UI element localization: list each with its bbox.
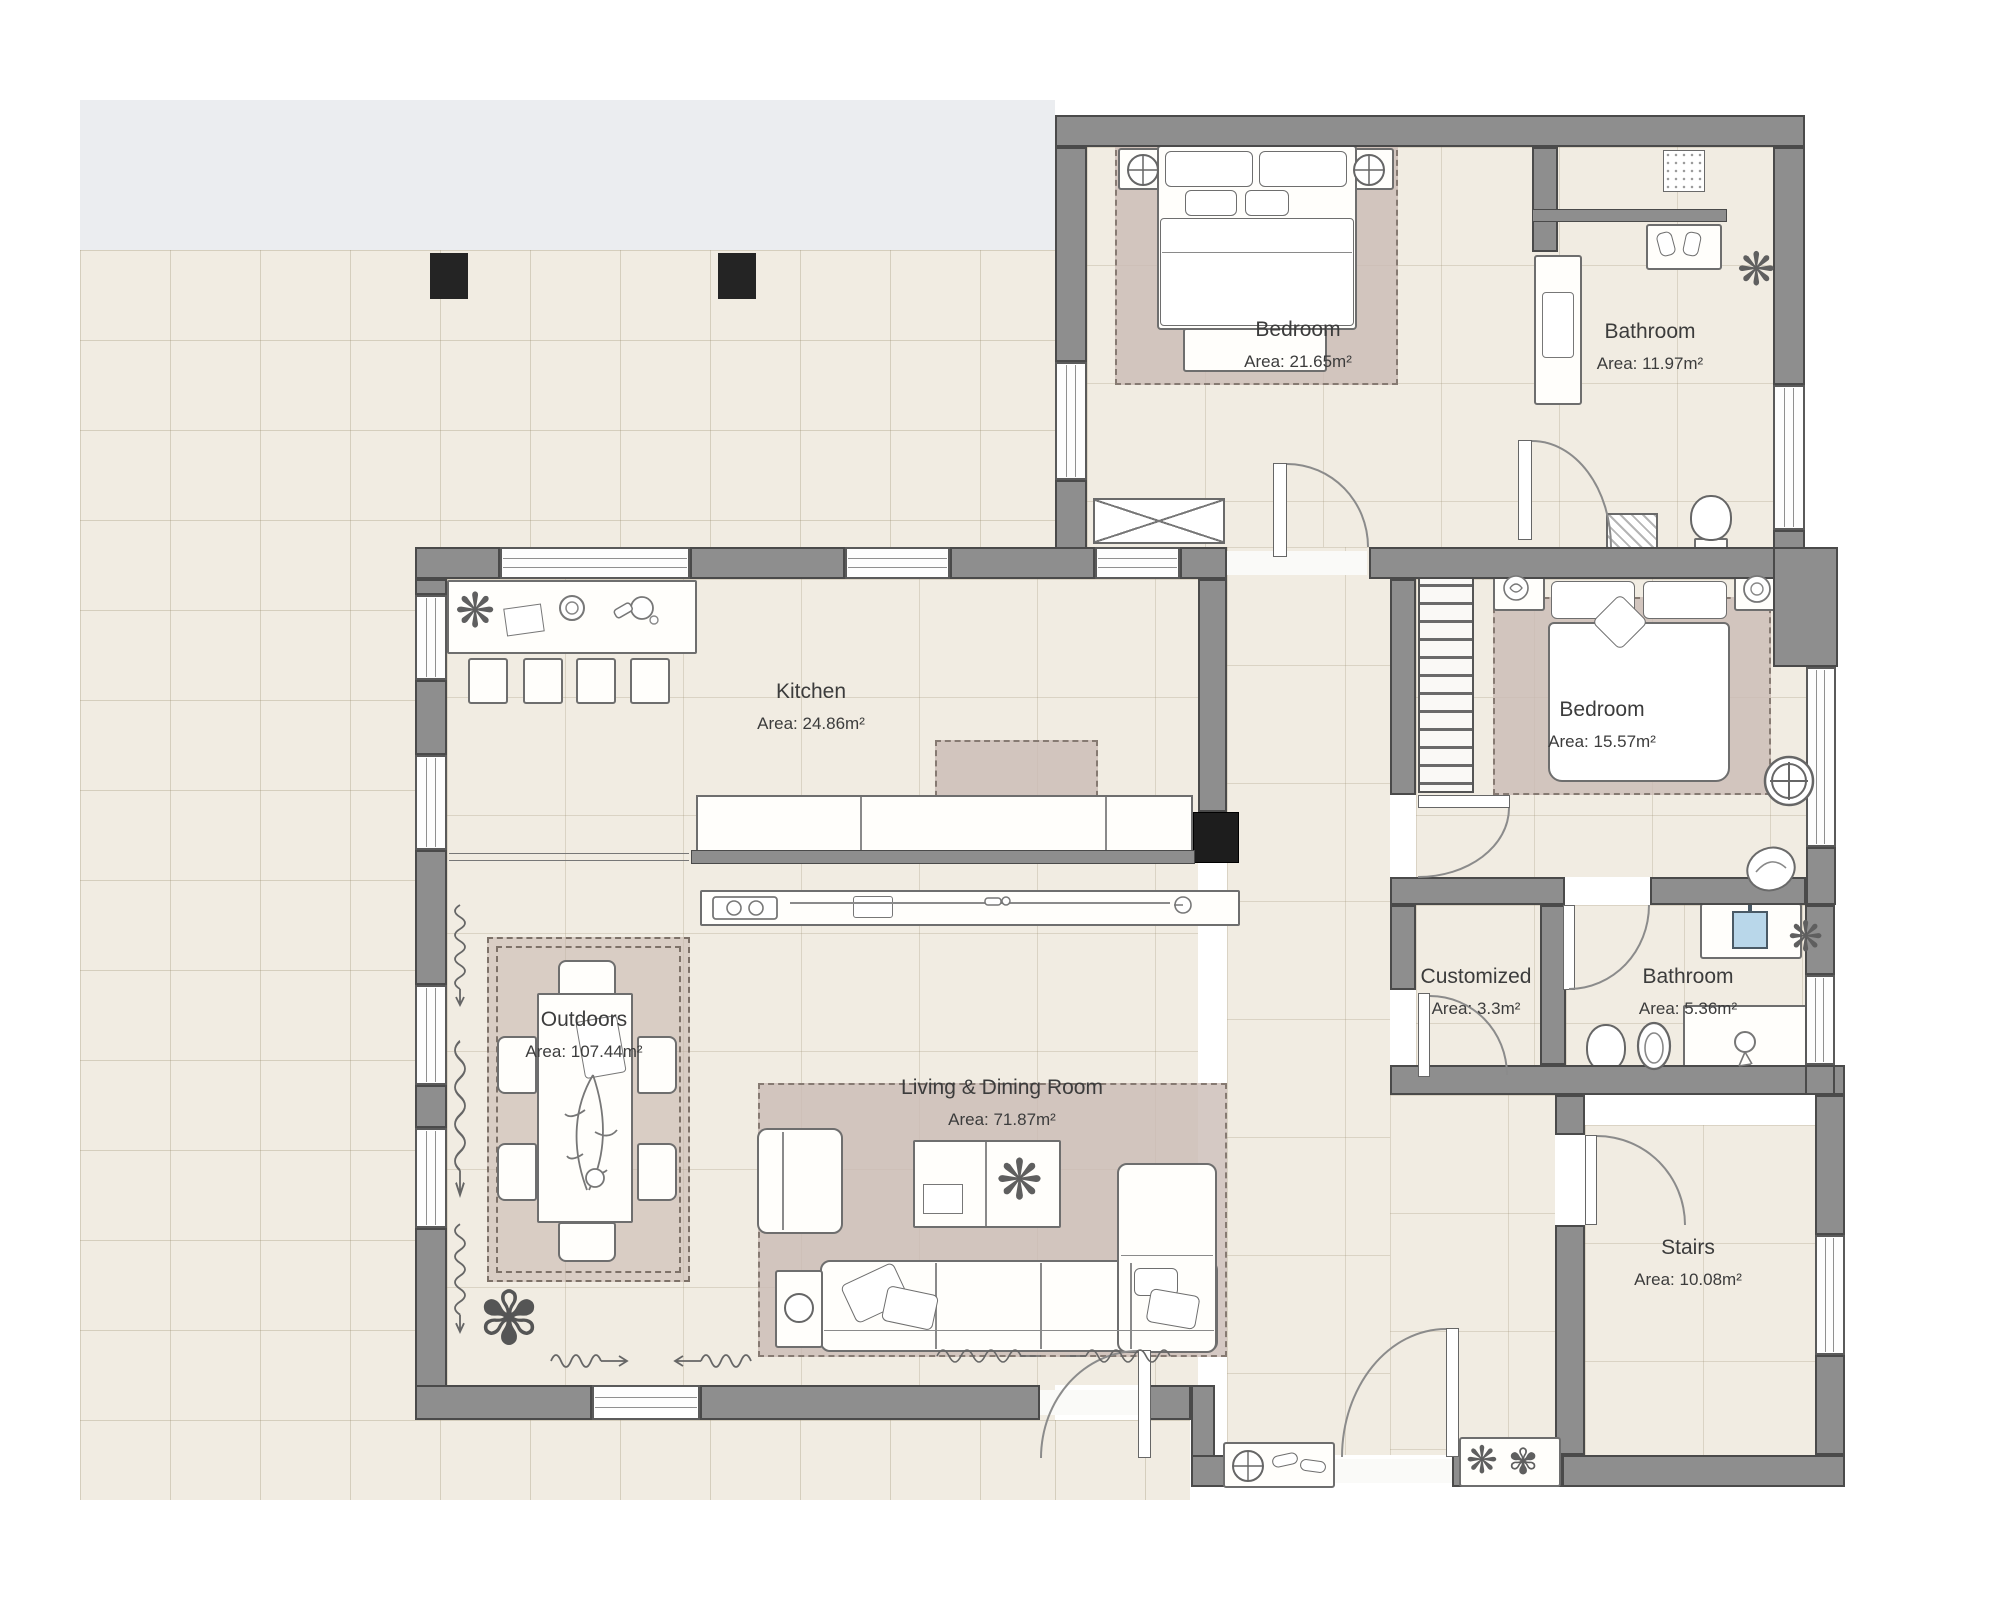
- stove-icon: [712, 893, 778, 923]
- room-area: Area: 10.08m²: [1634, 1270, 1742, 1290]
- plant-icon: ❋: [1737, 246, 1776, 292]
- armchair: [757, 1128, 843, 1234]
- door-leaf-stairs: [1585, 1135, 1597, 1225]
- utensils-icon: [612, 592, 660, 630]
- cushion: [1185, 190, 1237, 216]
- wall: [1390, 877, 1565, 905]
- faucet-icon: [983, 892, 1011, 910]
- knob-icon: [1172, 894, 1194, 916]
- bowl-icon: [1742, 842, 1800, 896]
- island-rail: [790, 902, 1170, 904]
- bar-stool: [468, 658, 508, 704]
- room-name: Living & Dining Room: [901, 1076, 1103, 1100]
- terrace-band: [80, 100, 1055, 250]
- room-area: Area: 21.65m²: [1244, 352, 1352, 372]
- door-leaf-bedroom1: [1273, 463, 1287, 557]
- room-area: Area: 24.86m²: [757, 714, 865, 734]
- bar-stool: [576, 658, 616, 704]
- bar-stool: [523, 658, 563, 704]
- wall: [1180, 547, 1227, 579]
- shower-head-icon: [1720, 1022, 1770, 1072]
- door-leaf-bathroom1: [1518, 440, 1532, 540]
- room-area: Area: 3.3m²: [1421, 999, 1532, 1019]
- shower-partition: [1532, 209, 1727, 222]
- room-name: Bathroom: [1639, 965, 1737, 989]
- compass-icon: [1762, 754, 1816, 808]
- room-label-bedroom2: Bedroom Area: 15.57m²: [1548, 698, 1656, 752]
- window: [1815, 1235, 1845, 1355]
- wall: [1805, 1065, 1835, 1095]
- bar-stool: [630, 658, 670, 704]
- sink-basin: [1732, 911, 1768, 949]
- dining-chair: [558, 1222, 616, 1262]
- room-label-bathroom2: Bathroom Area: 5.36m²: [1639, 965, 1737, 1019]
- counter-divider: [1105, 797, 1107, 850]
- wardrobe: [1093, 498, 1225, 544]
- room-name: Bedroom: [1244, 318, 1352, 342]
- cushion: [1245, 190, 1289, 216]
- room-label-stairs: Stairs Area: 10.08m²: [1634, 1236, 1742, 1290]
- room-label-outdoors: Outdoors Area: 107.44m²: [525, 1008, 642, 1062]
- wavy-mark-icon: [549, 1352, 633, 1370]
- room-name: Stairs: [1634, 1236, 1742, 1260]
- chaise-seam: [1121, 1255, 1213, 1256]
- room-area: Area: 5.36m²: [1639, 999, 1737, 1019]
- dining-chair: [637, 1036, 677, 1094]
- room-label-kitchen: Kitchen Area: 24.86m²: [757, 680, 865, 734]
- wall: [1815, 1095, 1845, 1235]
- window: [500, 547, 690, 579]
- door-leaf-entrance: [1446, 1328, 1459, 1457]
- dining-chair: [497, 1143, 537, 1201]
- fridge: [1193, 812, 1239, 863]
- dining-chair: [637, 1143, 677, 1201]
- basin-icon: [1740, 572, 1774, 606]
- plant-icon: ❋: [996, 1152, 1043, 1208]
- window: [415, 595, 447, 680]
- wavy-mark-icon: [450, 903, 470, 1007]
- wall: [1555, 1225, 1585, 1455]
- wall: [1773, 547, 1838, 667]
- flower-icon: ✾: [478, 1282, 540, 1356]
- room-name: Bathroom: [1597, 320, 1703, 344]
- window: [1055, 362, 1087, 480]
- pillow: [1643, 581, 1727, 619]
- room-label-bedroom1: Bedroom Area: 21.65m²: [1244, 318, 1352, 372]
- lamp-icon: [781, 1290, 817, 1326]
- wavy-mark-icon: [669, 1352, 753, 1370]
- window: [592, 1385, 700, 1420]
- vanity-sink: [1542, 292, 1574, 358]
- bidet-icon: [1634, 1020, 1674, 1072]
- table-box: [923, 1184, 963, 1214]
- wall: [1390, 579, 1416, 795]
- sofa-seam: [1040, 1263, 1042, 1349]
- window: [1805, 975, 1835, 1065]
- floor-plan-canvas: ❋ ❋ ❋: [0, 0, 2000, 1615]
- wall: [1773, 147, 1805, 385]
- sofa-seam: [1130, 1263, 1132, 1349]
- room-area: Area: 15.57m²: [1548, 732, 1656, 752]
- wall: [415, 1385, 592, 1420]
- table-divider: [985, 1142, 987, 1226]
- wall: [1815, 1355, 1845, 1455]
- plant-icon: ❋: [455, 588, 495, 636]
- plate-icon: [558, 594, 586, 622]
- plant-icon: ❋: [1466, 1442, 1498, 1480]
- window: [415, 755, 447, 850]
- room-area: Area: 71.87m²: [901, 1110, 1103, 1130]
- wall: [690, 547, 845, 579]
- pillow: [1165, 151, 1253, 187]
- wavy-mark-icon: [450, 1038, 470, 1198]
- wall: [415, 547, 500, 579]
- wall: [1562, 1455, 1845, 1487]
- wall: [1198, 579, 1227, 812]
- room-name: Outdoors: [525, 1008, 642, 1032]
- mirror-icon: [1230, 1448, 1266, 1484]
- wall: [1806, 847, 1836, 905]
- wall: [415, 850, 447, 985]
- room-label-living-dining: Living & Dining Room Area: 71.87m²: [901, 1076, 1103, 1130]
- plant-icon: ❋: [1788, 916, 1823, 958]
- kitchen-island: [700, 890, 1240, 926]
- door-leaf-bedroom2: [1418, 795, 1510, 808]
- window: [1095, 547, 1180, 579]
- toilet: [1690, 495, 1732, 541]
- blanket: [1160, 218, 1354, 326]
- wall: [415, 1085, 447, 1128]
- decor-swirl-icon: [1500, 572, 1532, 604]
- room-label-bathroom1: Bathroom Area: 11.97m²: [1597, 320, 1703, 374]
- wall: [1055, 147, 1087, 362]
- counter-wall: [691, 850, 1195, 864]
- wall: [1532, 147, 1558, 252]
- wavy-mark-icon: [1062, 1348, 1172, 1364]
- window: [845, 547, 950, 579]
- entrance-threshold: [1332, 1459, 1452, 1483]
- wavy-mark-icon: [450, 1222, 470, 1334]
- column-post: [718, 253, 756, 299]
- room-label-customized: Customized Area: 3.3m²: [1421, 965, 1532, 1019]
- armchair-back: [782, 1132, 784, 1230]
- wall: [1144, 1385, 1191, 1420]
- laundry-basket: [1606, 513, 1658, 551]
- room-name: Kitchen: [757, 680, 865, 704]
- room-area: Area: 11.97m²: [1597, 354, 1703, 374]
- window: [415, 1128, 447, 1228]
- wavy-mark-icon: [935, 1348, 1045, 1364]
- leaf-decor-icon: [555, 1070, 625, 1200]
- door-threshold: [1227, 551, 1367, 575]
- counter-divider: [860, 797, 862, 850]
- blanket-fold: [1162, 252, 1352, 253]
- wall: [415, 579, 447, 595]
- sofa-front-line: [824, 1330, 1214, 1331]
- window: [415, 985, 447, 1085]
- wall: [700, 1385, 1040, 1420]
- window: [1773, 385, 1805, 530]
- floor-hall: [1227, 547, 1390, 1455]
- lamp-icon: [1351, 152, 1387, 188]
- door-leaf-patio: [1138, 1350, 1151, 1458]
- kitchen-counter: [696, 795, 1193, 852]
- column-post: [430, 253, 468, 299]
- wall: [950, 547, 1095, 579]
- wall: [1390, 905, 1416, 990]
- flower-icon: ✾: [1508, 1444, 1538, 1480]
- placemat: [503, 603, 545, 636]
- sliding-track: [449, 853, 689, 861]
- lamp-icon: [1125, 152, 1161, 188]
- shower-drain: [1663, 150, 1705, 192]
- pillow: [1259, 151, 1347, 187]
- cutting-board: [853, 896, 893, 918]
- room-name: Customized: [1421, 965, 1532, 989]
- closet-shelves: [1418, 567, 1474, 793]
- room-name: Bedroom: [1548, 698, 1656, 722]
- wall: [1555, 1095, 1585, 1135]
- room-area: Area: 107.44m²: [525, 1042, 642, 1062]
- wall: [415, 680, 447, 755]
- wall: [1055, 115, 1805, 147]
